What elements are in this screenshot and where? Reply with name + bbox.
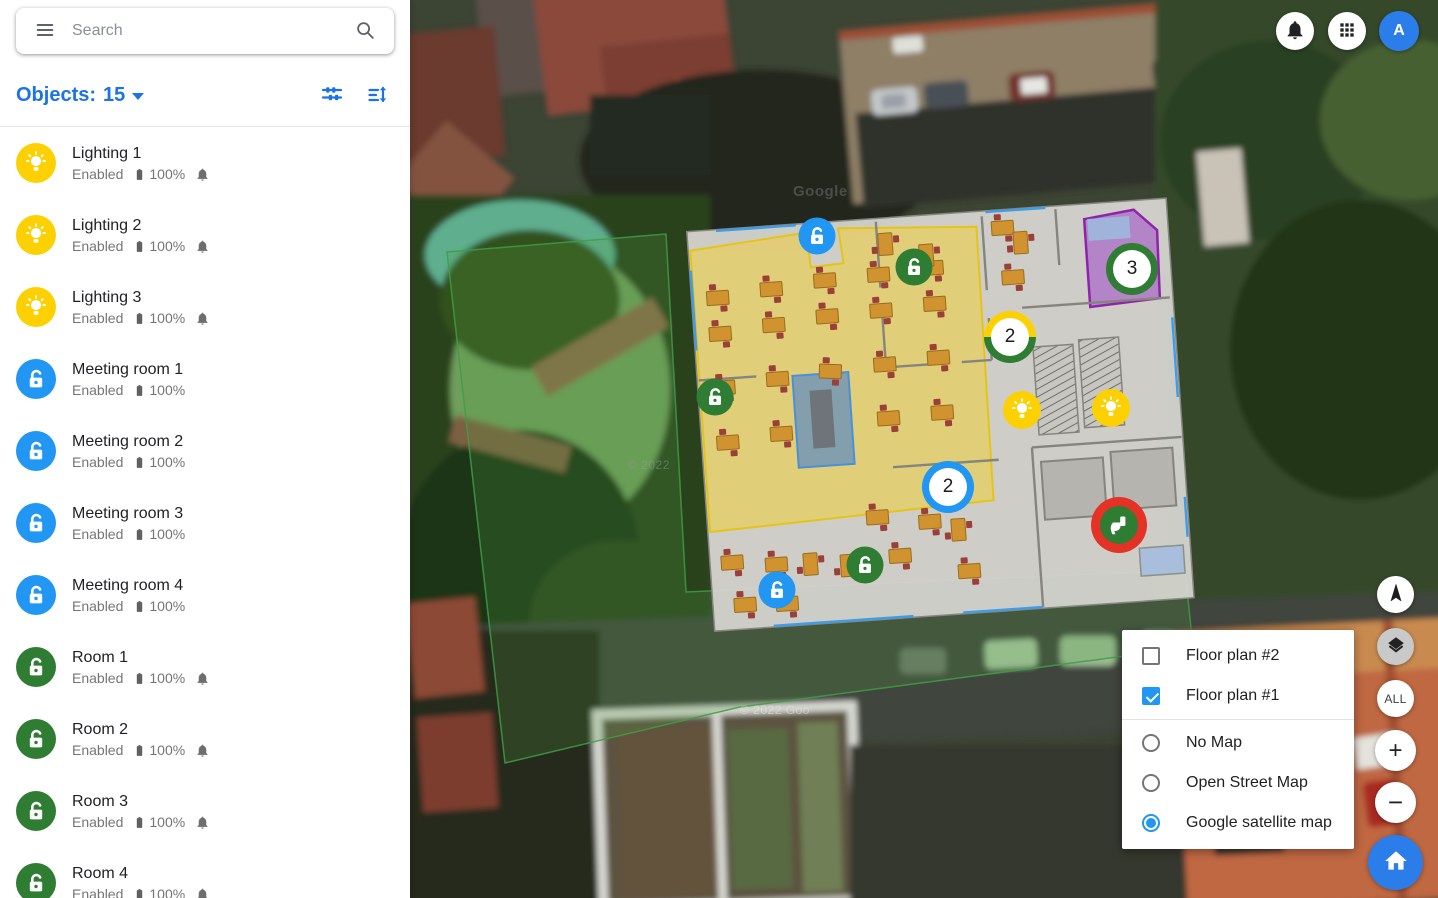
open-lock-icon xyxy=(16,431,56,471)
object-name: Lighting 1 xyxy=(72,144,210,164)
object-status: Enabled xyxy=(72,670,123,686)
sort-button[interactable] xyxy=(362,78,394,113)
layer-option-floor-plan-1[interactable]: Floor plan #1 xyxy=(1122,676,1354,716)
zoom-out-button[interactable]: − xyxy=(1375,782,1416,823)
battery-level: 100% xyxy=(149,886,185,898)
radio-selected[interactable] xyxy=(1142,814,1160,832)
apps-grid-icon xyxy=(1337,20,1357,43)
lock-marker[interactable] xyxy=(896,249,933,286)
object-status: Enabled xyxy=(72,886,123,898)
object-status-row: Enabled100% xyxy=(72,886,210,898)
object-list-item[interactable]: Meeting room 4Enabled100% xyxy=(0,559,410,631)
object-name: Room 1 xyxy=(72,648,210,668)
menu-button[interactable] xyxy=(30,15,60,48)
object-list: Lighting 1Enabled100%Lighting 2Enabled10… xyxy=(0,127,410,898)
layer-option-label: Floor plan #2 xyxy=(1186,647,1279,665)
battery-icon xyxy=(133,887,146,898)
lighting-marker[interactable] xyxy=(1092,389,1130,427)
object-list-item[interactable]: Lighting 3Enabled100% xyxy=(0,271,410,343)
battery-icon xyxy=(133,815,146,830)
cluster-count: 2 xyxy=(991,318,1029,356)
object-status: Enabled xyxy=(72,166,123,182)
open-lock-icon xyxy=(16,359,56,399)
object-status-row: Enabled100% xyxy=(72,670,210,686)
open-lock-icon xyxy=(16,719,56,759)
home-icon xyxy=(1383,848,1409,877)
open-lock-icon xyxy=(16,863,56,898)
cluster-count: 2 xyxy=(929,468,967,506)
object-status-row: Enabled100% xyxy=(72,166,210,182)
battery-icon xyxy=(133,311,146,326)
battery-icon xyxy=(133,383,146,398)
toilet-icon xyxy=(1100,506,1138,544)
zoom-in-button[interactable]: + xyxy=(1375,730,1416,771)
open-lock-icon xyxy=(16,791,56,831)
object-status-row: Enabled100% xyxy=(72,310,210,326)
alert-bell-icon xyxy=(195,239,210,254)
object-name: Meeting room 2 xyxy=(72,432,185,452)
alert-bell-icon xyxy=(195,815,210,830)
alert-bell-icon xyxy=(195,671,210,686)
object-status: Enabled xyxy=(72,382,123,398)
object-list-item[interactable]: Room 1Enabled100% xyxy=(0,631,410,703)
object-name: Meeting room 4 xyxy=(72,576,185,596)
alert-bell-icon xyxy=(195,167,210,182)
battery-icon xyxy=(133,671,146,686)
search-input[interactable] xyxy=(72,22,338,40)
object-name: Meeting room 3 xyxy=(72,504,185,524)
battery-level: 100% xyxy=(149,670,185,686)
battery-icon xyxy=(133,599,146,614)
show-all-button[interactable]: ALL xyxy=(1377,680,1414,717)
object-status: Enabled xyxy=(72,310,123,326)
search-button[interactable] xyxy=(350,15,380,48)
object-status-row: Enabled100% xyxy=(72,742,210,758)
sort-icon xyxy=(366,82,390,109)
search-icon xyxy=(354,19,376,44)
map-area[interactable]: Google © 2022 © 2022 Goo 322 A xyxy=(410,0,1438,898)
object-status: Enabled xyxy=(72,598,123,614)
search-bar xyxy=(16,8,394,54)
checkbox-unchecked[interactable] xyxy=(1142,647,1160,665)
alert-bell-icon xyxy=(195,311,210,326)
object-list-item[interactable]: Meeting room 3Enabled100% xyxy=(0,487,410,559)
layer-option-open-street-map[interactable]: Open Street Map xyxy=(1122,763,1354,803)
object-status: Enabled xyxy=(72,814,123,830)
battery-icon xyxy=(133,527,146,542)
objects-label: Objects: xyxy=(16,84,96,107)
battery-level: 100% xyxy=(149,454,185,470)
object-name: Room 3 xyxy=(72,792,210,812)
lock-marker[interactable] xyxy=(847,547,884,584)
layer-option-label: No Map xyxy=(1186,734,1242,752)
cluster-marker[interactable]: 2 xyxy=(984,311,1036,363)
lock-marker[interactable] xyxy=(799,218,836,255)
hamburger-icon xyxy=(34,19,56,44)
object-name: Lighting 2 xyxy=(72,216,210,236)
home-button[interactable] xyxy=(1368,835,1423,890)
notifications-button[interactable] xyxy=(1276,12,1314,50)
lock-marker[interactable] xyxy=(697,379,734,416)
sidebar: Objects:15 Lighting 1Enabled100%Lighting… xyxy=(0,0,410,898)
battery-level: 100% xyxy=(149,238,185,254)
battery-level: 100% xyxy=(149,310,185,326)
battery-level: 100% xyxy=(149,814,185,830)
objects-count: 15 xyxy=(103,84,125,107)
lightbulb-icon xyxy=(16,287,56,327)
object-list-item[interactable]: Meeting room 2Enabled100% xyxy=(0,415,410,487)
cluster-count: 3 xyxy=(1113,250,1151,288)
battery-icon xyxy=(133,167,146,182)
battery-icon xyxy=(133,455,146,470)
object-status-row: Enabled100% xyxy=(72,454,185,470)
checkbox-checked[interactable] xyxy=(1142,687,1160,705)
objects-count-dropdown[interactable]: Objects:15 xyxy=(16,84,144,107)
object-list-item[interactable]: Room 4Enabled100% xyxy=(0,847,410,898)
object-status: Enabled xyxy=(72,454,123,470)
lighting-marker[interactable] xyxy=(1003,391,1041,429)
layers-panel: Floor plan #2Floor plan #1No MapOpen Str… xyxy=(1122,630,1354,849)
cluster-marker[interactable]: 2 xyxy=(922,461,974,513)
toilet-marker[interactable] xyxy=(1091,497,1147,553)
object-name: Lighting 3 xyxy=(72,288,210,308)
layer-option-no-map[interactable]: No Map xyxy=(1122,723,1354,763)
battery-level: 100% xyxy=(149,526,185,542)
open-lock-icon xyxy=(16,503,56,543)
apps-button[interactable] xyxy=(1328,12,1366,50)
battery-icon xyxy=(133,239,146,254)
radio-unselected[interactable] xyxy=(1142,734,1160,752)
compass-button[interactable] xyxy=(1377,576,1414,613)
battery-level: 100% xyxy=(149,598,185,614)
object-name: Room 4 xyxy=(72,864,210,884)
object-status: Enabled xyxy=(72,526,123,542)
open-lock-icon xyxy=(16,575,56,615)
chevron-down-icon xyxy=(132,93,144,100)
battery-icon xyxy=(133,743,146,758)
bell-icon xyxy=(1284,19,1306,44)
objects-header: Objects:15 xyxy=(16,76,394,114)
object-list-item[interactable]: Lighting 1Enabled100% xyxy=(0,127,410,199)
divider xyxy=(1122,719,1354,720)
layer-option-google-satellite-map[interactable]: Google satellite map xyxy=(1122,803,1354,843)
layer-option-label: Open Street Map xyxy=(1186,774,1308,792)
object-list-item[interactable]: Room 3Enabled100% xyxy=(0,775,410,847)
user-avatar[interactable]: A xyxy=(1379,11,1419,51)
object-list-item[interactable]: Meeting room 1Enabled100% xyxy=(0,343,410,415)
object-status-row: Enabled100% xyxy=(72,526,185,542)
object-status-row: Enabled100% xyxy=(72,598,185,614)
object-status-row: Enabled100% xyxy=(72,382,185,398)
cluster-marker[interactable]: 3 xyxy=(1106,243,1158,295)
lightbulb-icon xyxy=(16,143,56,183)
lightbulb-icon xyxy=(16,215,56,255)
object-list-item[interactable]: Lighting 2Enabled100% xyxy=(0,199,410,271)
alert-bell-icon xyxy=(195,743,210,758)
object-status: Enabled xyxy=(72,742,123,758)
object-status-row: Enabled100% xyxy=(72,238,210,254)
battery-level: 100% xyxy=(149,742,185,758)
tune-icon xyxy=(320,82,344,109)
layers-button[interactable] xyxy=(1377,628,1414,665)
app-root: Objects:15 Lighting 1Enabled100%Lighting… xyxy=(0,0,1438,898)
battery-level: 100% xyxy=(149,166,185,182)
object-status-row: Enabled100% xyxy=(72,814,210,830)
battery-level: 100% xyxy=(149,382,185,398)
navigation-arrow-icon xyxy=(1384,581,1408,608)
alert-bell-icon xyxy=(195,887,210,898)
filter-button[interactable] xyxy=(316,78,348,113)
object-status: Enabled xyxy=(72,238,123,254)
layer-option-label: Floor plan #1 xyxy=(1186,687,1279,705)
object-list-item[interactable]: Room 2Enabled100% xyxy=(0,703,410,775)
layer-option-label: Google satellite map xyxy=(1186,814,1332,832)
object-name: Meeting room 1 xyxy=(72,360,185,380)
radio-unselected[interactable] xyxy=(1142,774,1160,792)
layers-icon xyxy=(1385,634,1407,659)
lock-marker[interactable] xyxy=(759,572,796,609)
open-lock-icon xyxy=(16,647,56,687)
object-name: Room 2 xyxy=(72,720,210,740)
layer-option-floor-plan-2[interactable]: Floor plan #2 xyxy=(1122,636,1354,676)
